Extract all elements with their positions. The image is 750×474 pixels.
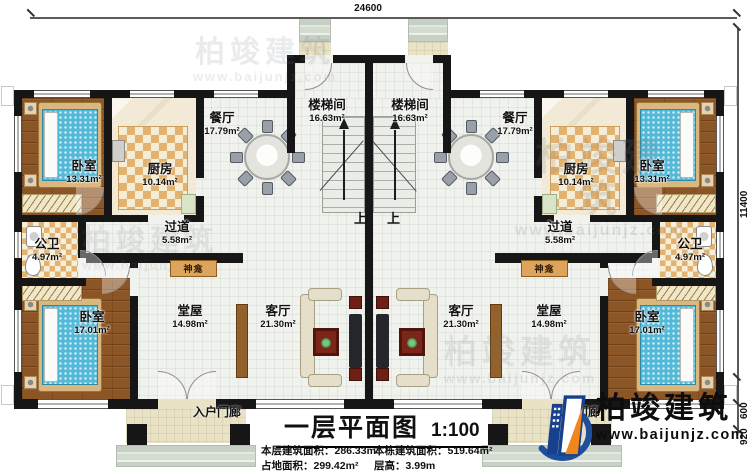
nightstand — [701, 174, 714, 187]
bed-pillow — [680, 112, 694, 178]
porch-column — [488, 424, 508, 445]
shrine-niche: 神龛 — [521, 260, 568, 277]
wardrobe — [656, 194, 716, 213]
page-title: 一层平面图 — [284, 408, 419, 444]
room-label-hall-r: 堂屋14.98m² — [531, 305, 566, 330]
porch-steps — [116, 445, 256, 467]
drawing-scale: 1:100 — [431, 420, 480, 442]
window — [214, 90, 258, 98]
window — [480, 90, 524, 98]
room-label-bedroom-bl: 卧室17.01m² — [74, 311, 109, 336]
sofa — [423, 294, 438, 378]
dimension-right: 11400 — [739, 178, 750, 218]
stair-direction-line — [394, 130, 396, 200]
room-name: 楼梯间 — [391, 99, 429, 113]
dining-table — [244, 134, 290, 180]
room-name: 公卫 — [32, 238, 62, 252]
stat-footprint-area: 占地面积：299.42m² — [261, 458, 358, 473]
plant — [407, 338, 417, 348]
door-opening — [600, 268, 608, 296]
wall — [104, 98, 112, 222]
room-name: 卧室 — [629, 311, 664, 325]
tv-cabinet — [349, 314, 362, 368]
room-area: 4.97m² — [32, 252, 62, 263]
kitchen-counter — [181, 194, 196, 214]
wall — [433, 55, 451, 63]
nightstand — [24, 102, 37, 115]
room-label-stair-l: 楼梯间16.63m² — [308, 99, 346, 124]
window — [38, 399, 108, 409]
room-area: 16.63m² — [308, 113, 346, 124]
room-name: 卧室 — [66, 160, 101, 174]
brand-logo: 柏竣建筑 www.baijunjz.com — [534, 392, 745, 464]
armchair — [396, 288, 430, 301]
room-label-bedroom-tr: 卧室13.31m² — [634, 160, 669, 185]
room-label-stair-r: 楼梯间16.63m² — [391, 99, 429, 124]
bed-pillow — [44, 308, 58, 382]
room-name: 客厅 — [443, 305, 478, 319]
window — [648, 90, 704, 98]
rear-steps — [299, 18, 331, 42]
porch-column — [230, 424, 250, 445]
stat-storey-height: 层高：3.99m — [374, 458, 435, 473]
dimension-tick — [733, 9, 741, 17]
window — [716, 310, 724, 372]
door-opening — [405, 55, 433, 63]
wall — [333, 55, 405, 63]
room-area: 17.79m² — [497, 126, 532, 137]
room-area: 10.14m² — [558, 177, 593, 188]
room-area: 5.58m² — [545, 235, 575, 246]
title-block: 一层平面图 1:100 — [276, 408, 488, 448]
room-label-bath-l: 公卫4.97m² — [32, 238, 62, 263]
room-area: 21.30m² — [443, 319, 478, 330]
armchair — [308, 288, 342, 301]
door-opening — [305, 55, 333, 63]
room-label-living-r: 客厅21.30m² — [443, 305, 478, 330]
dimension-top: 24600 — [338, 3, 398, 15]
rear-landing — [299, 42, 331, 55]
altar-cabinet — [236, 304, 248, 378]
dining-chair — [230, 152, 243, 163]
wall — [534, 98, 542, 178]
altar-cabinet — [490, 304, 502, 378]
dining-chair — [262, 182, 273, 195]
window — [14, 232, 22, 258]
kitchen-sink-counter — [613, 140, 626, 162]
room-label-bedroom-tl: 卧室13.31m² — [66, 160, 101, 185]
room-label-dining-r: 餐厅17.79m² — [497, 112, 532, 137]
dining-chair — [496, 152, 509, 163]
room-area: 14.98m² — [531, 319, 566, 330]
wardrobe — [22, 194, 82, 213]
stair-direction-line — [343, 130, 345, 200]
speaker — [376, 296, 389, 309]
floor-plan-drawing: 2460011400600920卧室13.31m²厨房10.14m²餐厅17.7… — [0, 0, 750, 474]
wall — [86, 253, 243, 263]
kitchen-counter — [542, 194, 557, 214]
corner-trim — [1, 86, 14, 106]
dining-table — [448, 134, 494, 180]
room-area: 17.79m² — [204, 126, 239, 137]
bed-pillow — [44, 112, 58, 178]
nightstand — [701, 376, 714, 389]
room-label-kitchen-r: 厨房10.14m² — [558, 163, 593, 188]
room-name: 卧室 — [634, 160, 669, 174]
room-name: 厨房 — [142, 163, 177, 177]
wall — [287, 55, 305, 63]
door-opening — [130, 268, 138, 296]
room-name: 堂屋 — [172, 305, 207, 319]
window — [14, 310, 22, 372]
room-name: 卧室 — [74, 311, 109, 325]
corner-trim — [1, 385, 14, 405]
stat-floor-area: 本层建筑面积：286.33m² — [261, 443, 379, 458]
wall — [365, 55, 373, 409]
room-name: 餐厅 — [204, 112, 239, 126]
speaker — [349, 296, 362, 309]
dimension-line-top — [30, 17, 737, 19]
dining-chair — [434, 152, 447, 163]
wall — [626, 98, 634, 222]
room-name: 厨房 — [558, 163, 593, 177]
room-label-bath-r: 公卫4.97m² — [675, 238, 705, 263]
room-name: 过道 — [162, 221, 192, 235]
room-area: 13.31m² — [634, 174, 669, 185]
room-area: 17.01m² — [629, 325, 664, 336]
room-label-dining-l: 餐厅17.79m² — [204, 112, 239, 137]
speaker — [349, 368, 362, 381]
window — [130, 90, 174, 98]
room-label-living-l: 客厅21.30m² — [260, 305, 295, 330]
dining-chair — [466, 120, 477, 133]
dining-chair — [292, 152, 305, 163]
wall — [652, 278, 724, 286]
room-name: 堂屋 — [531, 305, 566, 319]
plant — [321, 338, 331, 348]
wall — [495, 253, 652, 263]
bed-pillow — [680, 308, 694, 382]
wall — [287, 98, 295, 153]
nightstand — [701, 102, 714, 115]
room-name: 餐厅 — [497, 112, 532, 126]
rear-landing — [408, 42, 448, 55]
room-area: 5.58m² — [162, 235, 192, 246]
room-label-hallway-l: 过道5.58m² — [162, 221, 192, 246]
room-label-bedroom-br: 卧室17.01m² — [629, 311, 664, 336]
porch-column — [127, 424, 147, 445]
rear-steps — [408, 18, 448, 42]
room-area: 13.31m² — [66, 174, 101, 185]
shrine-niche: 神龛 — [170, 260, 217, 277]
brand-name: 柏竣建筑 — [596, 392, 745, 427]
wall — [196, 98, 204, 178]
nightstand — [24, 174, 37, 187]
room-name: 楼梯间 — [308, 99, 346, 113]
nightstand — [24, 376, 37, 389]
dimension-line-right — [737, 28, 739, 432]
room-area: 14.98m² — [172, 319, 207, 330]
room-label-hall-l: 堂屋14.98m² — [172, 305, 207, 330]
stat-building-area: 本栋建筑面积：519.64m² — [374, 443, 492, 458]
tv-cabinet — [376, 314, 389, 368]
wall — [14, 278, 86, 286]
room-area: 16.63m² — [391, 113, 429, 124]
dining-chair — [262, 120, 273, 133]
window — [564, 90, 608, 98]
room-label-kitchen-l: 厨房10.14m² — [142, 163, 177, 188]
room-area: 21.30m² — [260, 319, 295, 330]
window — [716, 116, 724, 172]
room-area: 10.14m² — [142, 177, 177, 188]
room-name: 公卫 — [675, 238, 705, 252]
window — [34, 90, 90, 98]
kitchen-sink-counter — [112, 140, 125, 162]
brand-website: www.baijunjz.com — [596, 427, 745, 443]
window — [14, 116, 22, 172]
room-area: 4.97m² — [675, 252, 705, 263]
armchair — [396, 374, 430, 387]
armchair — [308, 374, 342, 387]
dining-chair — [466, 182, 477, 195]
wall — [443, 98, 451, 153]
room-label-hallway-r: 过道5.58m² — [545, 221, 575, 246]
brand-building-icon — [534, 392, 592, 464]
room-name: 过道 — [545, 221, 575, 235]
room-name: 客厅 — [260, 305, 295, 319]
corner-trim — [724, 86, 737, 106]
speaker — [376, 368, 389, 381]
room-area: 17.01m² — [74, 325, 109, 336]
window — [716, 232, 724, 258]
dimension-tick — [27, 9, 35, 17]
